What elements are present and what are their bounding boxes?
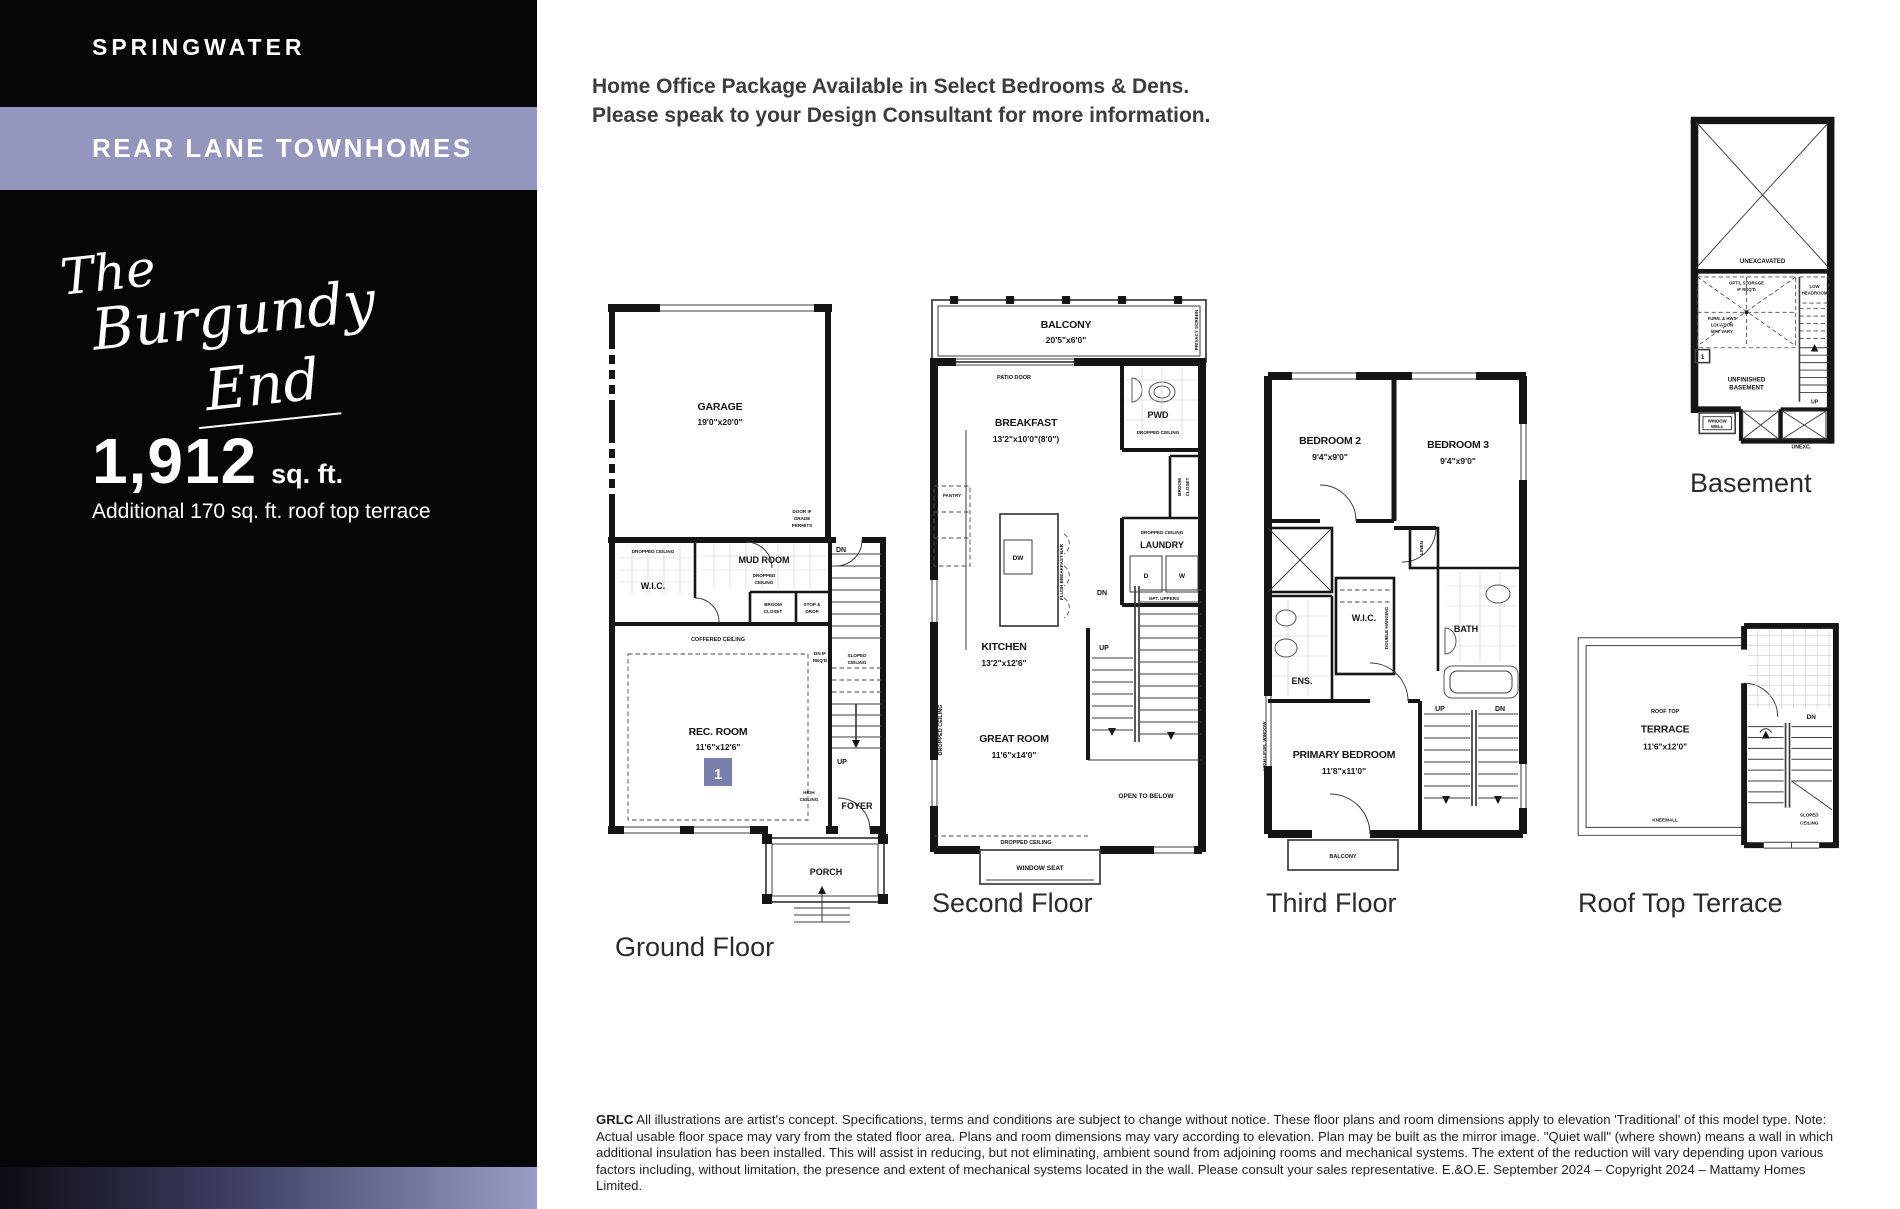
basement-labels: UNEXCAVATED OPT'L STORAGE IF REQ'D FURN.… (1701, 258, 1828, 450)
svg-text:OPEN TO BELOW: OPEN TO BELOW (1118, 793, 1174, 800)
wic-label: W.I.C. (641, 581, 666, 591)
svg-text:CLOSET: CLOSET (764, 609, 783, 614)
svg-text:DOUBLE HANGING: DOUBLE HANGING (1384, 606, 1389, 649)
laundry-label: LAUNDRY (1140, 540, 1184, 550)
product-band: REAR LANE TOWNHOMES (0, 107, 537, 190)
svg-text:UP: UP (1099, 645, 1109, 652)
svg-text:SLOPED: SLOPED (1800, 813, 1819, 818)
balcony-label: BALCONY (1329, 854, 1357, 860)
great-room-label: GREAT ROOM (979, 733, 1049, 745)
svg-text:20'5"x6'0": 20'5"x6'0" (1046, 335, 1086, 345)
pwd-label: PWD (1148, 410, 1169, 420)
svg-text:DROPPED CEILING: DROPPED CEILING (1137, 430, 1180, 435)
community-name: SPRINGWATER (92, 34, 306, 61)
svg-text:PATIO DOOR: PATIO DOOR (997, 375, 1031, 381)
svg-text:WELL: WELL (1711, 424, 1724, 429)
svg-text:BASEMENT: BASEMENT (1729, 385, 1764, 392)
svg-text:DROPPED CEILING: DROPPED CEILING (632, 549, 675, 554)
svg-text:UNEXC.: UNEXC. (1792, 444, 1812, 450)
note-line1: Home Office Package Available in Select … (592, 72, 1210, 101)
svg-text:UP: UP (837, 759, 847, 766)
basement-marker: 1 (1701, 354, 1705, 361)
svg-text:FURN. & HWT: FURN. & HWT (1708, 316, 1737, 321)
foyer-label: FOYER (841, 801, 873, 811)
basement-title: Basement (1690, 468, 1812, 499)
svg-text:DROPPED CEILING: DROPPED CEILING (1000, 840, 1051, 846)
svg-text:WINDOW: WINDOW (1708, 418, 1728, 423)
svg-text:DOOR IF: DOOR IF (792, 509, 811, 514)
floorplan-sheet: SPRINGWATER REAR LANE TOWNHOMES The Burg… (0, 0, 1900, 1209)
porch-label: PORCH (810, 867, 843, 877)
svg-text:9'4"x9'0": 9'4"x9'0" (1440, 456, 1476, 466)
garage-label: GARAGE (698, 401, 743, 413)
second-floor-plan: BALCONY 20'5"x6'0" PRIVACY SCREEN PATIO … (926, 290, 1211, 885)
third-floor-plan: BEDROOM 2 9'4"x9'0" BEDROOM 3 9'4"x9'0" … (1260, 366, 1535, 876)
svg-text:11'6"x14'0": 11'6"x14'0" (992, 750, 1037, 760)
svg-text:WINDOW SEAT: WINDOW SEAT (1016, 865, 1063, 872)
note-line2: Please speak to your Design Consultant f… (592, 101, 1210, 130)
svg-text:PRIVACY SCREEN: PRIVACY SCREEN (1194, 309, 1199, 350)
terrace-label: TERRACE (1641, 725, 1690, 736)
svg-text:GRADE: GRADE (794, 516, 811, 521)
svg-text:CLOSET: CLOSET (1185, 477, 1190, 496)
svg-text:ROOF TOP: ROOF TOP (1651, 709, 1680, 715)
svg-text:HIGH LEVEL WINDOW: HIGH LEVEL WINDOW (1262, 721, 1267, 771)
svg-text:HIGH: HIGH (803, 790, 815, 795)
kitchen-label: KITCHEN (981, 641, 1026, 653)
marker-1: 1 (714, 766, 722, 783)
wic-label: W.I.C. (1352, 613, 1377, 623)
legal-disclaimer: GRLC All illustrations are artist's conc… (596, 1112, 1849, 1195)
svg-text:DN: DN (836, 547, 846, 554)
bedroom3-label: BEDROOM 3 (1427, 439, 1489, 451)
balcony-label: BALCONY (1041, 319, 1092, 331)
svg-text:OPT. UPPERS: OPT. UPPERS (1149, 596, 1179, 601)
basement-stairs (1799, 277, 1828, 402)
roof-grid (1748, 630, 1832, 709)
svg-text:PERMITS: PERMITS (792, 523, 812, 528)
svg-text:OPT'L STORAGE: OPT'L STORAGE (1729, 280, 1764, 285)
svg-text:STOP &: STOP & (804, 602, 822, 607)
svg-text:UP: UP (1811, 400, 1819, 406)
square-footage: 1,912 sq. ft. (92, 424, 343, 498)
mud-room-label: MUD ROOM (739, 555, 790, 565)
roof-terrace-plan: ROOF TOP TERRACE 11'6"x12'0" KNEEWALL DN… (1574, 620, 1846, 860)
disclaimer-text: All illustrations are artist's concept. … (596, 1112, 1833, 1193)
third-labels: BEDROOM 2 9'4"x9'0" BEDROOM 3 9'4"x9'0" … (1262, 435, 1505, 860)
svg-text:CEILING: CEILING (848, 660, 867, 665)
ground-labels: GARAGE 19'0"x20'0" DOOR IF GRADE PERMITS… (632, 401, 873, 877)
svg-text:11'6"x12'0": 11'6"x12'0" (1643, 741, 1687, 751)
svg-text:SLOPED: SLOPED (848, 653, 868, 658)
unexcavated-label: UNEXCAVATED (1740, 258, 1786, 265)
svg-text:IF REQ'D: IF REQ'D (1737, 287, 1756, 292)
svg-text:9'4"x9'0": 9'4"x9'0" (1312, 452, 1348, 462)
svg-text:FLUSH BREAKFAST BAR: FLUSH BREAKFAST BAR (1059, 543, 1064, 600)
sqft-value: 1,912 (92, 424, 257, 498)
second-stairs (1088, 586, 1202, 855)
product-name: REAR LANE TOWNHOMES (92, 133, 473, 164)
primary-bedroom-label: PRIMARY BEDROOM (1293, 749, 1396, 761)
svg-text:D: D (1144, 573, 1149, 580)
svg-text:DN: DN (1807, 714, 1817, 721)
gradient-strip (0, 1167, 537, 1209)
svg-text:CEILING: CEILING (1800, 820, 1819, 825)
svg-text:DROP: DROP (805, 609, 818, 614)
bath-label: BATH (1454, 624, 1478, 634)
sidebar: SPRINGWATER REAR LANE TOWNHOMES The Burg… (0, 0, 537, 1209)
svg-text:REQ'D: REQ'D (813, 658, 828, 663)
third-stairs (1424, 710, 1518, 806)
svg-text:HEADROOM: HEADROOM (1802, 291, 1828, 296)
ensuite-label: ENS. (1291, 676, 1312, 686)
ground-floor-plan: GARAGE 19'0"x20'0" DOOR IF GRADE PERMITS… (598, 292, 893, 927)
svg-text:LOW: LOW (1810, 284, 1821, 289)
svg-text:CEILING: CEILING (755, 580, 774, 585)
svg-text:11'8"x11'0": 11'8"x11'0" (1322, 766, 1366, 776)
ground-stairs (832, 554, 882, 748)
svg-text:MAY VARY: MAY VARY (1711, 329, 1733, 334)
svg-text:13'2"x10'0"(8'0"): 13'2"x10'0"(8'0") (993, 434, 1060, 444)
svg-text:DW: DW (1013, 555, 1025, 562)
roof-terrace-title: Roof Top Terrace (1578, 888, 1783, 919)
second-floor-title: Second Floor (932, 888, 1093, 919)
basement-plan: UNEXCAVATED OPT'L STORAGE IF REQ'D FURN.… (1686, 113, 1842, 453)
model-name-line3: End (192, 345, 341, 430)
svg-text:DROPPED: DROPPED (753, 573, 776, 578)
svg-text:LINEN: LINEN (1419, 540, 1424, 554)
svg-text:DN: DN (1097, 590, 1107, 597)
garage-dims: 19'0"x20'0" (697, 417, 742, 427)
additional-sqft-note: Additional 170 sq. ft. roof top terrace (92, 500, 431, 524)
ground-porch (762, 834, 888, 922)
svg-text:DROPPED CEILING: DROPPED CEILING (938, 704, 944, 755)
svg-text:PANTRY: PANTRY (943, 493, 961, 498)
svg-text:W: W (1179, 573, 1186, 580)
svg-text:DN IF: DN IF (814, 651, 826, 656)
home-office-note: Home Office Package Available in Select … (592, 72, 1210, 130)
svg-text:UNFINISHED: UNFINISHED (1728, 376, 1766, 383)
svg-text:13'2"x12'6": 13'2"x12'6" (981, 658, 1026, 668)
bedroom2-label: BEDROOM 2 (1299, 435, 1361, 447)
svg-text:BROOM: BROOM (1177, 478, 1182, 496)
roof-stairs (1748, 723, 1832, 810)
rec-room-label: REC. ROOM (689, 726, 748, 738)
third-floor-title: Third Floor (1266, 888, 1397, 919)
ground-floor-title: Ground Floor (615, 932, 774, 963)
svg-text:KNEEWALL: KNEEWALL (1652, 817, 1678, 822)
svg-text:11'6"x12'6": 11'6"x12'6" (696, 742, 741, 752)
svg-text:DROPPED CEILING: DROPPED CEILING (1141, 530, 1184, 535)
basement-unexcavated (1696, 122, 1828, 267)
breakfast-label: BREAKFAST (995, 417, 1058, 429)
sqft-unit: sq. ft. (271, 459, 343, 490)
svg-text:COFFERED CEILING: COFFERED CEILING (691, 637, 745, 643)
disclaimer-prefix: GRLC (596, 1112, 633, 1127)
svg-text:CEILING: CEILING (800, 797, 819, 802)
svg-text:DN: DN (1495, 706, 1505, 713)
svg-text:LOCATION: LOCATION (1711, 322, 1733, 327)
svg-text:BROOM: BROOM (764, 602, 782, 607)
svg-text:UP: UP (1435, 706, 1445, 713)
